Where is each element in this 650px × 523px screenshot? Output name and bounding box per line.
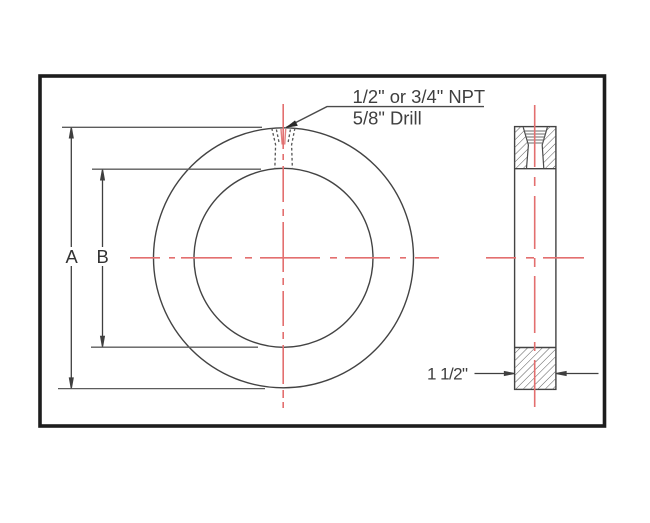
svg-text:1 1/2": 1 1/2" — [427, 365, 468, 384]
svg-text:B: B — [97, 246, 109, 267]
svg-text:1/2" or 3/4" NPT: 1/2" or 3/4" NPT — [353, 86, 486, 107]
svg-text:A: A — [66, 246, 79, 267]
svg-text:5/8" Drill: 5/8" Drill — [353, 108, 422, 129]
